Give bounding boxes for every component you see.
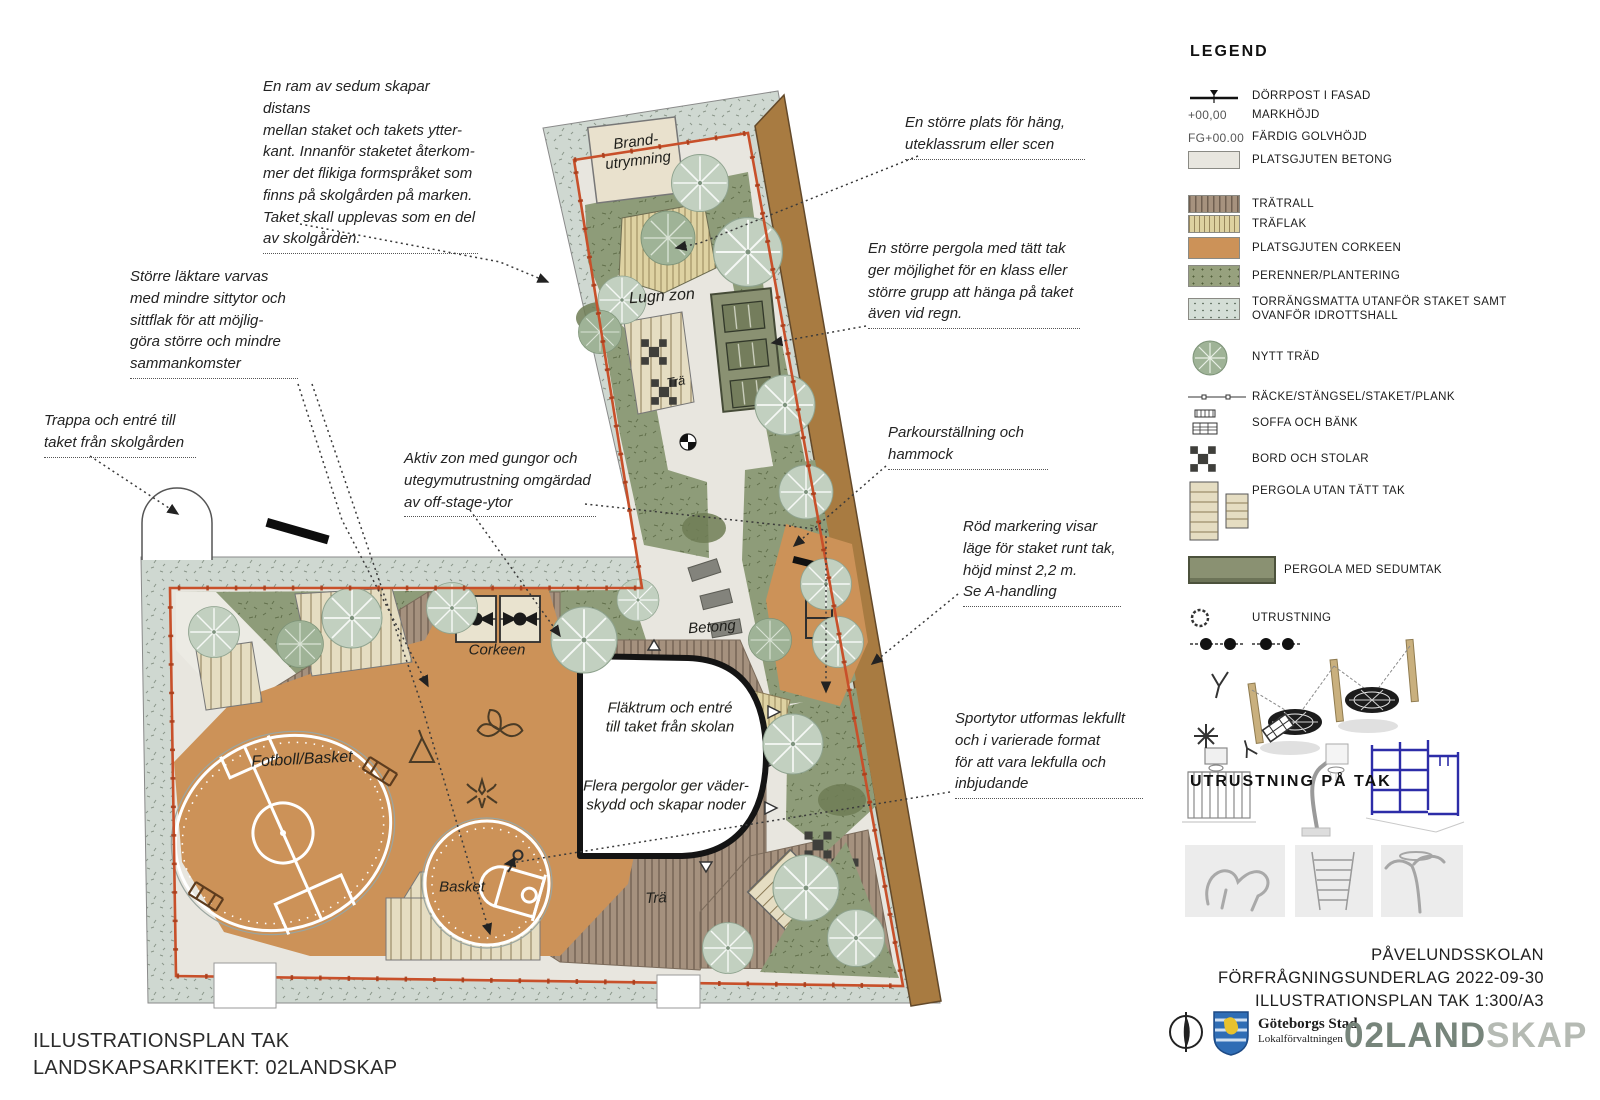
annotation-staket: Röd markering visar läge för staket runt… bbox=[963, 516, 1121, 607]
legend-symbols-row bbox=[1202, 668, 1583, 702]
drawing-sheet: Brand- utrymning Lugn zon Trä Corkeen Be… bbox=[0, 0, 1600, 1100]
corkeen-swatch bbox=[1188, 237, 1252, 259]
legend-row: PLATSGJUTEN CORKEEN bbox=[1188, 237, 1583, 259]
goteborg-crest-logo bbox=[1214, 1012, 1248, 1055]
annotation-hang-plats: En större plats för häng, uteklassrum el… bbox=[905, 112, 1085, 160]
legend-row: TORRÄNGSMATTA UTANFÖR STAKET SAMT OVANFÖ… bbox=[1188, 295, 1583, 324]
gung-symbol-icon bbox=[1188, 634, 1318, 654]
traflak-swatch bbox=[1188, 215, 1252, 233]
label-tra-large: Trä bbox=[645, 889, 667, 908]
label-tra-small: Trä bbox=[665, 372, 686, 391]
racke-icon bbox=[1188, 392, 1252, 402]
annotation-aktiv-zon: Aktiv zon med gungor och utegymutrustnin… bbox=[404, 448, 596, 517]
dorrpost-icon bbox=[1188, 88, 1252, 104]
label-flaktrum: Fläktrum och entré till taket från skola… bbox=[580, 699, 760, 737]
nytt-trad-icon bbox=[1188, 338, 1252, 378]
pergola-sedumtak-swatch bbox=[1188, 556, 1284, 584]
brand-02landskap: 02LANDSKAP bbox=[1344, 1016, 1587, 1056]
torrangsmatta-swatch bbox=[1188, 298, 1252, 320]
sheet-footer: ILLUSTRATIONSPLAN TAK LANDSKAPSARKITEKT:… bbox=[33, 1028, 397, 1082]
legend-row: PERENNER/PLANTERING bbox=[1188, 265, 1583, 287]
markhojd-symbol: +00,00 bbox=[1188, 108, 1252, 122]
flaktrum-outline bbox=[580, 656, 766, 856]
titleblock-text: PÅVELUNDSSKOLAN FÖRFRÅGNINGSUNDERLAG 202… bbox=[1218, 944, 1544, 1013]
utrustning-icon bbox=[1188, 606, 1252, 630]
legend-row: PERGOLA UTAN TÄTT TAK bbox=[1188, 480, 1583, 542]
entrance-bar bbox=[266, 518, 330, 544]
legend-row: NYTT TRÄD bbox=[1188, 338, 1583, 378]
compass-glyph bbox=[680, 434, 696, 450]
legend-row: RÄCKE/STÄNGSEL/STAKET/PLANK bbox=[1188, 390, 1583, 404]
annotation-trappa: Trappa och entré till taket från skolgår… bbox=[44, 410, 196, 458]
pergola-utan-tak-icon bbox=[1188, 480, 1252, 542]
tratrall-swatch bbox=[1188, 195, 1252, 213]
legend-row: SOFFA OCH BÄNK bbox=[1188, 408, 1583, 438]
label-betong: Betong bbox=[688, 617, 737, 639]
annotation-parkour: Parkourställning och hammock bbox=[888, 422, 1048, 470]
legend-row: TRÄTRALL bbox=[1188, 195, 1583, 213]
legend-row: +00,00 MARKHÖJD bbox=[1188, 108, 1583, 122]
trappa-arch bbox=[142, 488, 212, 560]
annotation-pergola: En större pergola med tätt tak ger möjli… bbox=[868, 238, 1080, 329]
north-arrow-icon bbox=[1170, 1012, 1202, 1052]
legend-title: LEGEND bbox=[1190, 44, 1583, 60]
label-brandutrymning: Brand- utrymning bbox=[602, 129, 672, 174]
legend-row: PLATSGJUTEN BETONG bbox=[1188, 151, 1583, 169]
legend-row: FG+00.00 FÄRDIG GOLVHÖJD bbox=[1188, 130, 1583, 144]
star-bench-symbols-icon bbox=[1188, 710, 1338, 758]
legend-row: PERGOLA MED SEDUMTAK bbox=[1188, 556, 1583, 584]
legend-symbols-row bbox=[1188, 710, 1583, 758]
label-corkeen: Corkeen bbox=[469, 642, 526, 661]
label-pergolor: Flera pergolor ger väder- skydd och skap… bbox=[571, 777, 761, 815]
annotation-sportytor: Sportytor utformas lekfullt och i varier… bbox=[955, 708, 1143, 799]
legend-symbols-row bbox=[1188, 634, 1583, 654]
legend-row: TRÄFLAK bbox=[1188, 215, 1583, 233]
legend-row: UTRUSTNING bbox=[1188, 606, 1583, 630]
legend-row: BORD OCH STOLAR bbox=[1188, 444, 1583, 474]
legend: LEGEND DÖRRPOST I FASAD +00,00 MARKHÖJD … bbox=[1188, 44, 1583, 794]
legend-row: DÖRRPOST I FASAD bbox=[1188, 88, 1583, 104]
soffa-bank-icon bbox=[1188, 408, 1252, 438]
bord-stolar-icon bbox=[1188, 444, 1252, 474]
equipment-photo-tiles bbox=[1185, 845, 1463, 917]
annotation-laktare: Större läktare varvas med mindre sittyto… bbox=[130, 266, 298, 379]
goteborg-logo-text: Göteborgs Stad Lokalförvaltningen bbox=[1258, 1016, 1358, 1045]
y-symbol-icon bbox=[1202, 668, 1242, 702]
annotation-sedum-frame: En ram av sedum skapar distans mellan st… bbox=[263, 76, 478, 254]
golvhojd-symbol: FG+00.00 bbox=[1188, 131, 1252, 145]
perenner-swatch bbox=[1188, 265, 1252, 287]
equipment-title: UTRUSTNING PÅ TAK bbox=[1190, 774, 1583, 790]
label-basket: Basket bbox=[439, 879, 485, 898]
betong-swatch bbox=[1188, 151, 1252, 169]
